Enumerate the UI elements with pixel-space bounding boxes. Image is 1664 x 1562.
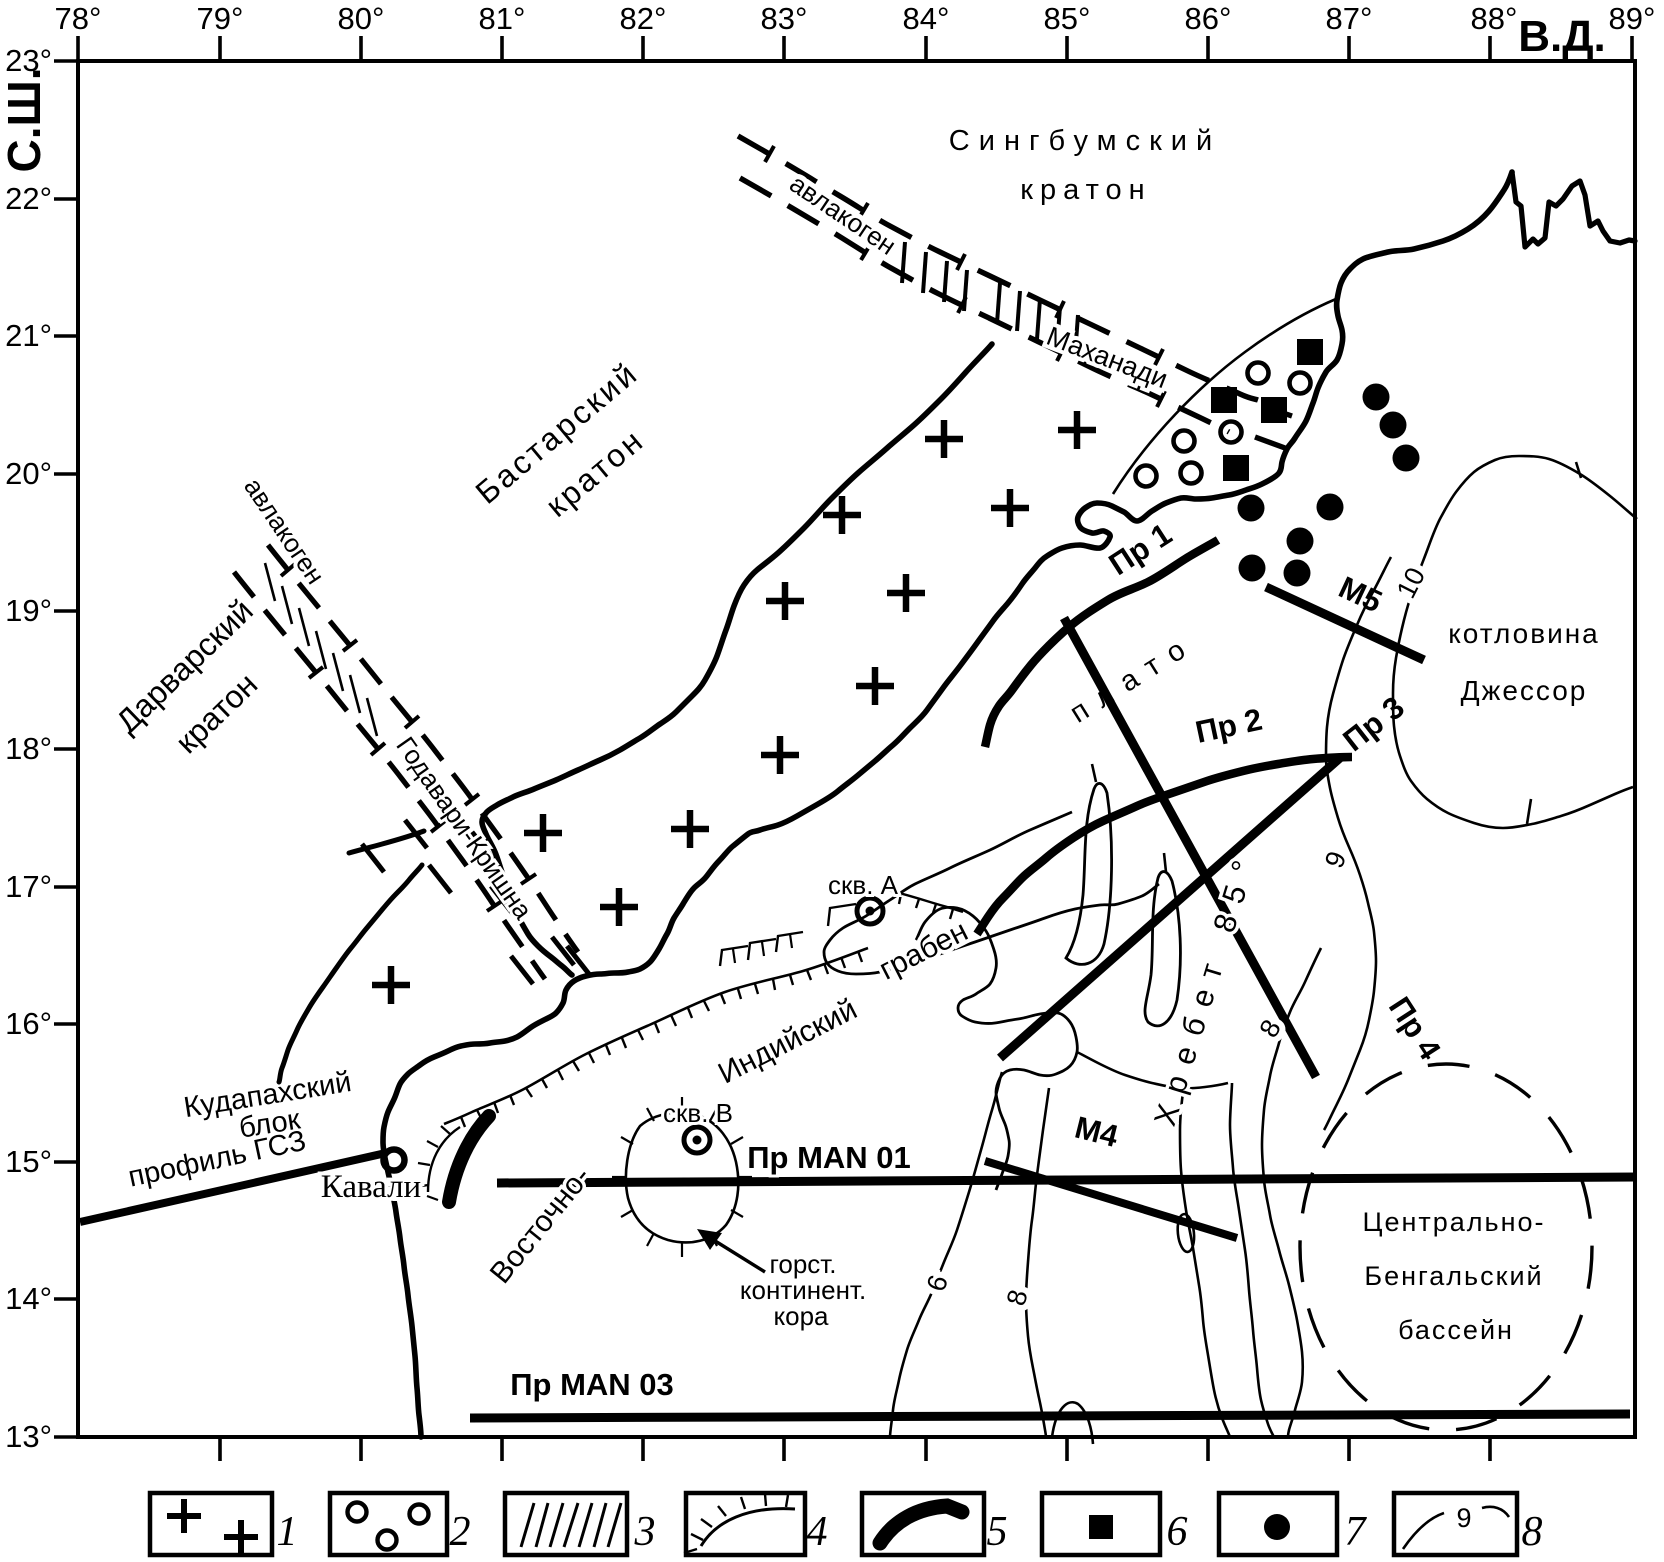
svg-text:6: 6	[1167, 1509, 1188, 1555]
svg-text:3: 3	[634, 1509, 656, 1555]
svg-text:Центрально-: Центрально-	[1362, 1207, 1545, 1237]
svg-text:87°: 87°	[1326, 1, 1373, 36]
svg-text:78°: 78°	[55, 1, 102, 36]
svg-text:скв. В: скв. В	[663, 1098, 733, 1128]
svg-text:Кавали: Кавали	[321, 1169, 421, 1205]
svg-text:17°: 17°	[5, 869, 52, 904]
svg-text:88°: 88°	[1471, 1, 1518, 36]
svg-text:2: 2	[450, 1509, 471, 1555]
svg-text:86°: 86°	[1185, 1, 1232, 36]
svg-text:8: 8	[1522, 1509, 1543, 1555]
svg-text:14°: 14°	[5, 1281, 52, 1316]
svg-text:81°: 81°	[479, 1, 526, 36]
svg-text:7: 7	[1345, 1509, 1368, 1555]
svg-text:15°: 15°	[5, 1144, 52, 1179]
svg-text:83°: 83°	[761, 1, 808, 36]
svg-text:21°: 21°	[5, 318, 52, 353]
svg-text:скв. А: скв. А	[828, 870, 899, 900]
svg-text:18°: 18°	[5, 731, 52, 766]
svg-text:9: 9	[1456, 1503, 1471, 1533]
svg-text:4: 4	[807, 1509, 828, 1555]
svg-text:бассейн: бассейн	[1398, 1315, 1514, 1345]
svg-text:19°: 19°	[5, 593, 52, 628]
svg-text:Пр MAN 03: Пр MAN 03	[510, 1367, 674, 1402]
svg-text:20°: 20°	[5, 456, 52, 491]
svg-text:82°: 82°	[620, 1, 667, 36]
svg-text:Сингбумский: Сингбумский	[949, 125, 1221, 157]
svg-text:84°: 84°	[903, 1, 950, 36]
svg-text:В.Д.: В.Д.	[1518, 12, 1606, 61]
svg-text:С.Ш.: С.Ш.	[0, 67, 50, 172]
svg-text:13°: 13°	[5, 1419, 52, 1454]
svg-text:22°: 22°	[5, 181, 52, 216]
svg-text:Пр MAN 01: Пр MAN 01	[747, 1140, 911, 1175]
svg-text:80°: 80°	[338, 1, 385, 36]
svg-text:Джессор: Джессор	[1461, 675, 1588, 706]
svg-text:1: 1	[277, 1509, 298, 1555]
svg-text:89°: 89°	[1609, 1, 1656, 36]
svg-text:Бенгальский: Бенгальский	[1364, 1261, 1543, 1291]
svg-text:кратон: кратон	[1020, 174, 1151, 206]
svg-text:79°: 79°	[197, 1, 244, 36]
svg-text:кора: кора	[773, 1301, 829, 1331]
svg-text:85°: 85°	[1044, 1, 1091, 36]
svg-text:16°: 16°	[5, 1006, 52, 1041]
svg-text:котловина: котловина	[1448, 618, 1600, 649]
svg-text:5: 5	[987, 1509, 1008, 1555]
